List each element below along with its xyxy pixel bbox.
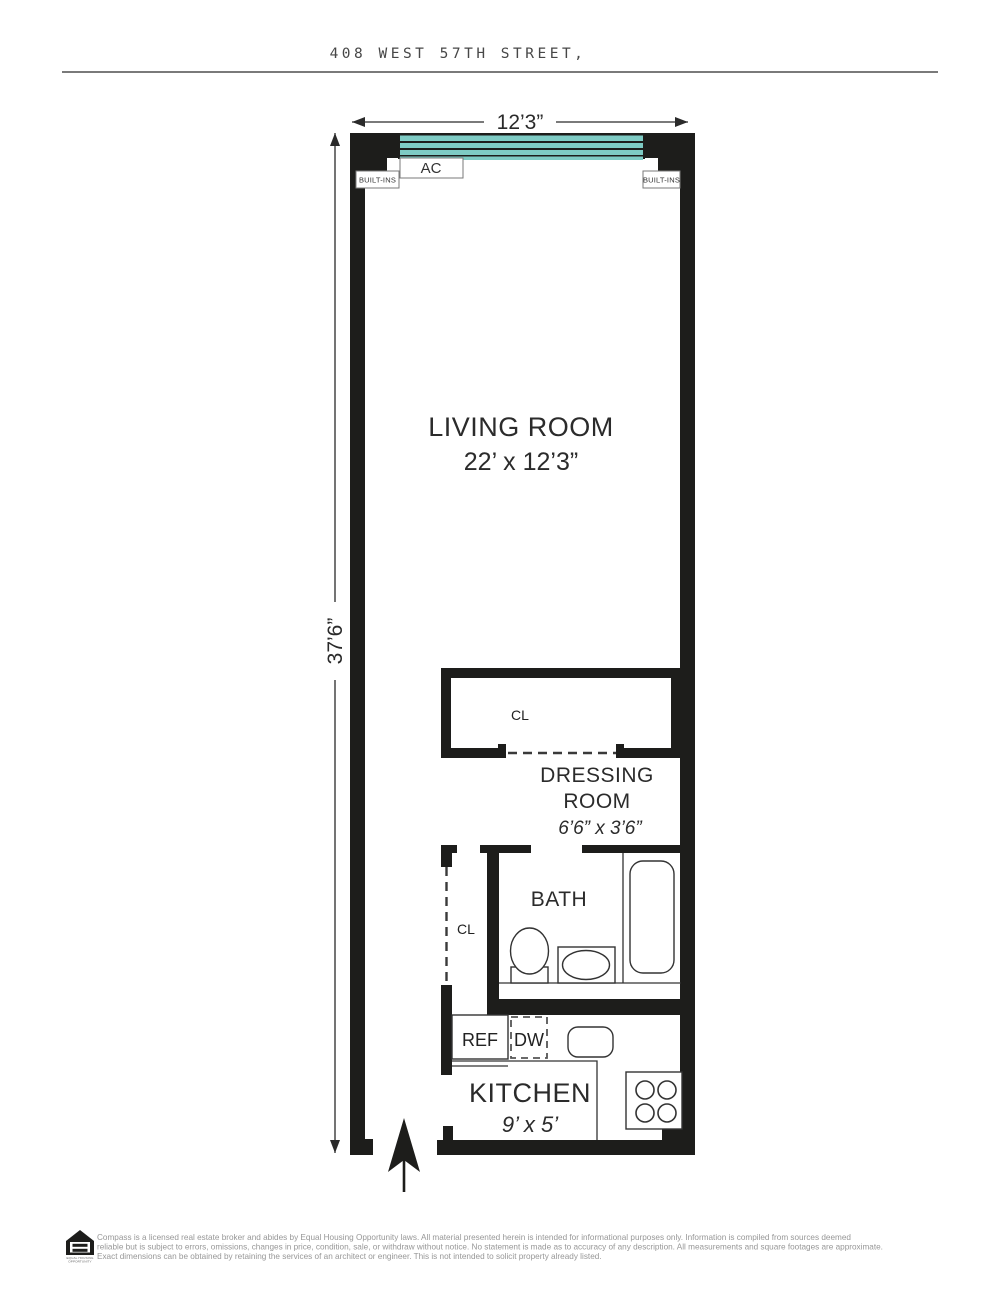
built-ins-label-left: BUILT-INS: [359, 176, 396, 185]
floor-plan-page: 408 WEST 57TH STREET,: [0, 0, 1000, 1294]
disclaimer-line-2: reliable but is subject to errors, omiss…: [97, 1243, 883, 1252]
equal-housing-opportunity-logo: EQUAL HOUSING OPPORTUNITY: [66, 1230, 94, 1264]
eho-equals-bar: [73, 1249, 88, 1252]
bath-wall-top-right: [582, 845, 695, 853]
built-ins-label-right: BUILT-INS: [643, 176, 680, 185]
refrigerator-label: REF: [462, 1030, 498, 1050]
dishwasher-label: DW: [514, 1030, 544, 1050]
bath-fixtures: [499, 853, 681, 983]
dressing-closet-wall-right: [671, 668, 681, 758]
left-wall: [350, 133, 365, 1155]
arrowhead-down-icon: [330, 1140, 340, 1153]
entry-arrow-icon: [388, 1118, 420, 1192]
page-title: 408 WEST 57TH STREET,: [330, 46, 587, 62]
living-room-size: 22’ x 12’3”: [464, 448, 578, 476]
kitchen-label: KITCHEN: [469, 1078, 591, 1108]
height-dimension-label: 37’6”: [324, 618, 347, 665]
left-wall-foot: [350, 1139, 373, 1155]
closet-door-stub-right: [616, 744, 624, 758]
stove-box: [626, 1072, 682, 1129]
arrowhead-up-icon: [330, 133, 340, 146]
callout-boxes: AC BUILT-INS BUILT-INS: [356, 158, 680, 188]
dressing-room-label-line1: DRESSING: [540, 764, 654, 787]
bath-wall-bottom: [487, 999, 695, 1015]
walls: [350, 133, 695, 1155]
window-stripe: [400, 136, 643, 142]
toilet-bowl-icon: [511, 928, 549, 974]
dressing-closet-label: CL: [511, 707, 529, 723]
bottom-wall-stub: [443, 1126, 453, 1140]
disclaimer-line-1: Compass is a licensed real estate broker…: [97, 1233, 851, 1242]
bottom-wall: [437, 1140, 695, 1155]
living-room-label: LIVING ROOM: [428, 412, 614, 442]
dressing-closet-wall-bottom-left: [441, 748, 501, 758]
dressing-closet-wall-top: [441, 668, 681, 678]
arrowhead-left-icon: [352, 117, 365, 127]
eho-caption-line2: OPPORTUNITY: [68, 1260, 91, 1264]
ac-label: AC: [421, 160, 442, 177]
top-left-corner-wall: [350, 133, 400, 172]
hall-closet-label: CL: [457, 921, 475, 937]
floor-plan-canvas: 408 WEST 57TH STREET,: [0, 0, 1000, 1294]
dressing-room-label-line2: ROOM: [563, 790, 630, 813]
height-dimension: 37’6”: [324, 133, 347, 1153]
bathtub-icon: [630, 861, 674, 973]
closet-door-stub-left: [498, 744, 506, 758]
hall-wall-stub: [441, 845, 457, 853]
dressing-closet-wall-left: [441, 668, 451, 758]
kitchen-sink-icon: [568, 1027, 613, 1057]
bath-sink-basin-icon: [563, 951, 610, 980]
window-stripe: [400, 143, 643, 148]
width-dimension: 12’3”: [352, 108, 688, 134]
width-dimension-label: 12’3”: [497, 111, 544, 134]
dressing-room-size: 6’6” x 3’6”: [558, 818, 643, 839]
arrowhead-right-icon: [675, 117, 688, 127]
bath-closet-divider-wall: [487, 845, 499, 1017]
bath-label: BATH: [531, 888, 587, 911]
disclaimer-line-3: Exact dimensions can be obtained by reta…: [97, 1252, 602, 1261]
eho-equals-bar: [73, 1244, 88, 1247]
footer: EQUAL HOUSING OPPORTUNITY Compass is a l…: [66, 1230, 883, 1264]
hall-wall-lower: [441, 985, 452, 1075]
dressing-closet-wall-bottom-right: [620, 748, 681, 758]
window-stripe: [400, 150, 643, 155]
kitchen-size: 9’ x 5’: [502, 1112, 559, 1137]
